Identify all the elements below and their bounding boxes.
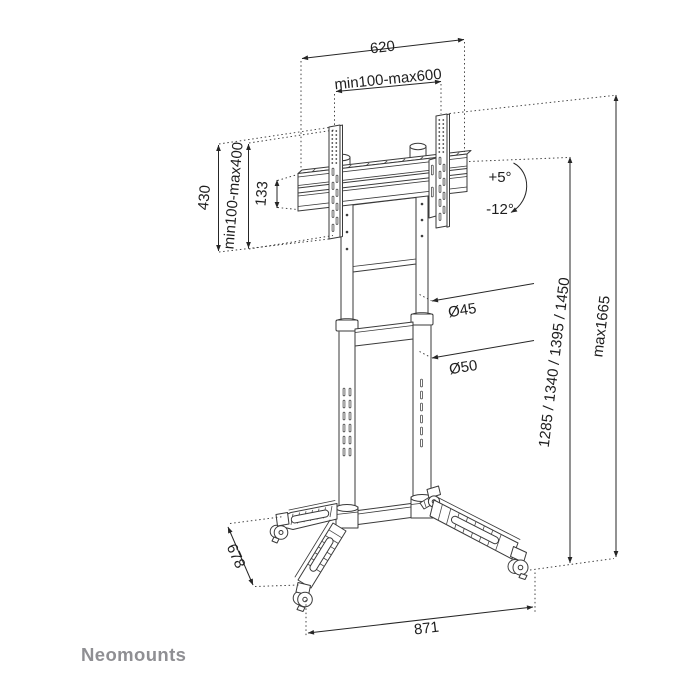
label-bracket-height: 430 xyxy=(195,184,214,210)
label-display-heights: 1285 / 1340 / 1395 / 1450 xyxy=(536,277,574,449)
leader-upper-pole xyxy=(432,284,534,302)
vesa-rail-right xyxy=(436,114,450,228)
label-tilt-down: -12° xyxy=(486,201,514,218)
upper-column-panel xyxy=(353,198,416,273)
label-upper-pole-diameter: Ø45 xyxy=(447,300,478,321)
leg-front-left xyxy=(295,520,346,588)
lower-poles xyxy=(339,326,431,516)
leg-front-right xyxy=(430,497,520,560)
base-hub-left xyxy=(336,505,358,529)
label-bracket-width: 620 xyxy=(369,38,396,58)
mid-crossbar xyxy=(355,322,413,346)
caster-front-left xyxy=(293,583,312,612)
caster-back-left xyxy=(270,513,289,544)
tilt-link xyxy=(429,158,436,218)
label-vesa-height: min100-max400 xyxy=(220,141,246,250)
base-brace xyxy=(358,504,411,525)
label-tilt-up: +5° xyxy=(488,169,511,186)
leg-back-left xyxy=(282,501,337,530)
base xyxy=(270,486,528,612)
vesa-rail-left xyxy=(329,125,343,239)
pole-collar-right xyxy=(411,313,433,326)
page: 620 min100-max600 430 min100-max400 133 … xyxy=(0,0,700,700)
label-lower-pole-diameter: Ø50 xyxy=(448,357,479,378)
label-vesa-width: min100-max600 xyxy=(334,66,443,94)
stand-technical-drawing: 620 min100-max600 430 min100-max400 133 … xyxy=(0,0,700,700)
label-base-width: 871 xyxy=(413,619,440,639)
label-max-height: max1665 xyxy=(589,295,613,358)
brand-logo: Neomounts xyxy=(81,644,186,665)
leader-lower-pole xyxy=(432,341,534,359)
label-rail-height: 133 xyxy=(252,180,271,206)
